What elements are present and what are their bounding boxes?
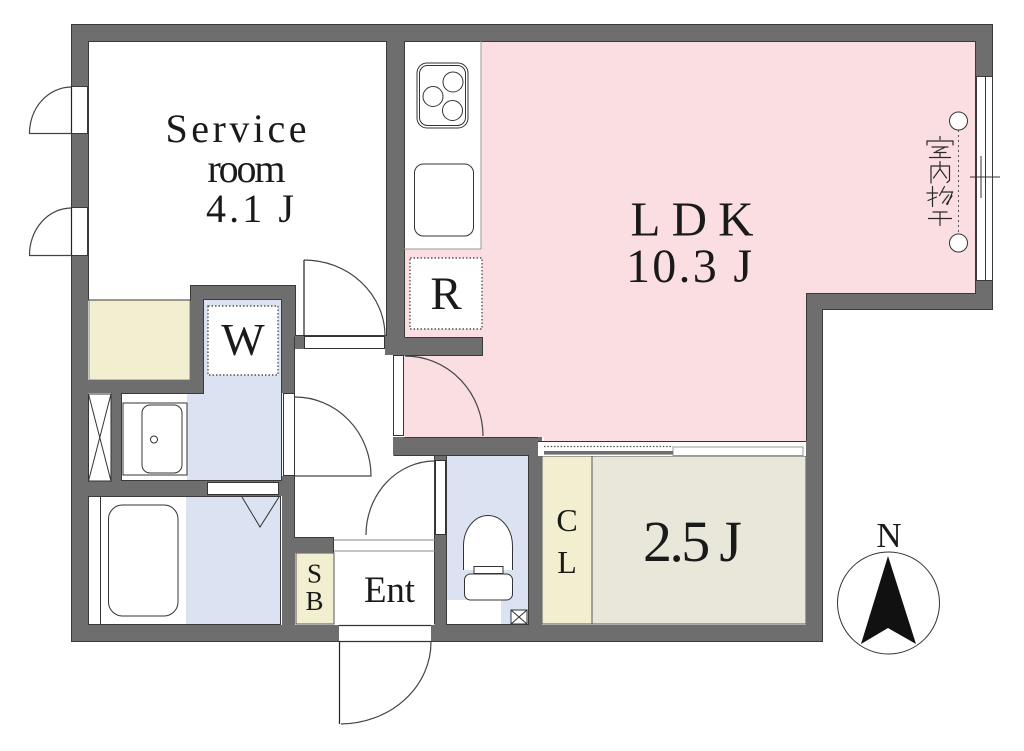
svg-text:R: R: [430, 268, 462, 320]
svg-text:L: L: [557, 544, 577, 580]
svg-text:10.3 J: 10.3 J: [626, 240, 752, 293]
svg-text:2.5 J: 2.5 J: [643, 509, 742, 574]
svg-text:4.1 J: 4.1 J: [206, 186, 294, 231]
svg-text:B: B: [305, 586, 323, 616]
svg-text:LDK: LDK: [631, 192, 754, 247]
svg-text:Ent: Ent: [364, 570, 416, 611]
svg-text:C: C: [556, 502, 577, 538]
svg-text:room: room: [208, 146, 286, 191]
svg-text:W: W: [221, 314, 265, 365]
svg-text:N: N: [876, 516, 901, 555]
svg-text:S: S: [307, 559, 322, 589]
